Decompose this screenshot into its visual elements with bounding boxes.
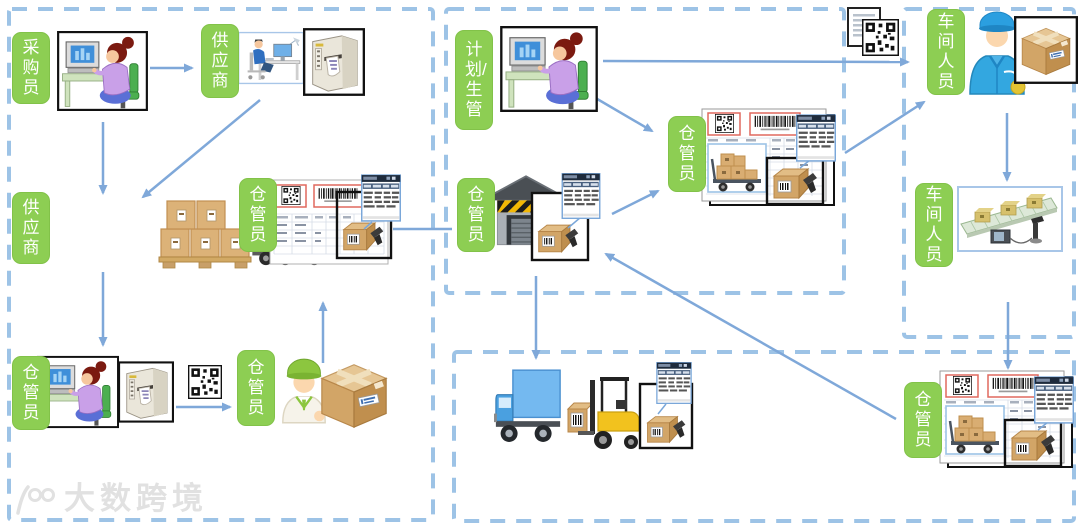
putaway-worker-image [283,359,325,423]
arrow-warehouse-to-issue-keeper [612,191,658,214]
role-label-text: 计划/生管 [465,40,483,120]
role-label-planner: 计划/生管 [455,30,493,130]
role-label-supplier-left: 供应商 [12,192,50,264]
role-label-text: 车间人员 [937,12,955,92]
role-label-keeper-print: 仓管员 [12,356,50,430]
role-label-text: 仓管员 [249,185,267,245]
role-label-text: 车间人员 [925,185,943,265]
label-qr-code-image [189,366,222,399]
conveyor-scanning-image [958,187,1062,251]
role-label-text: 仓管员 [678,124,696,184]
keeper-label-printer-image [119,362,173,421]
role-label-text: 仓管员 [22,363,40,423]
role-label-workshop-top: 车间人员 [927,9,965,95]
role-label-text: 仓管员 [247,358,265,418]
role-label-keeper-issue: 仓管员 [668,116,706,192]
role-label-purchaser: 采购员 [12,32,50,104]
watermark-brand-text: 大数跨境 [64,482,208,516]
role-label-keeper-warehouse: 仓管员 [457,178,495,252]
warehouse-scanning-image [492,174,600,260]
role-label-workshop-line: 车间人员 [915,183,953,267]
forklift-scanning-image [568,363,692,449]
role-label-text: 仓管员 [914,390,932,450]
workshop-box-image [1015,17,1077,83]
role-label-keeper-putaway: 仓管员 [237,350,275,426]
planner-computer-image [501,27,596,111]
document-qr-icon [848,8,898,55]
shipping-truck-image [494,370,560,442]
return-document-image [940,371,1073,467]
role-label-text: 采购员 [22,38,40,98]
purchaser-computer-image [58,32,147,110]
role-label-keeper-return: 仓管员 [904,382,942,458]
role-label-text: 仓管员 [467,185,485,245]
role-label-text: 供应商 [22,198,40,258]
arrow-issue-doc-to-workshop [845,102,924,153]
watermark-logo-icon [10,482,56,516]
putaway-box-image [322,365,386,427]
watermark: 大数跨境 [10,482,208,516]
arrow-return-to-warehouse [606,254,896,419]
pallet-boxes-image [159,201,251,268]
role-label-keeper-receiving: 仓管员 [239,178,277,252]
role-label-supplier-top: 供应商 [201,24,239,98]
role-label-text: 供应商 [211,31,229,91]
receiving-document-image [270,175,400,264]
warehouse-process-diagram: 采购员 供应商 供应商 仓管员 仓管员 仓管员 计划/生管 仓管员 仓管员 车间… [0,0,1080,532]
issue-document-image [702,109,835,205]
supplier-label-printer-image [304,29,364,94]
supplier-desk-image [239,33,304,84]
arrow-planner-to-workshop [603,61,908,62]
